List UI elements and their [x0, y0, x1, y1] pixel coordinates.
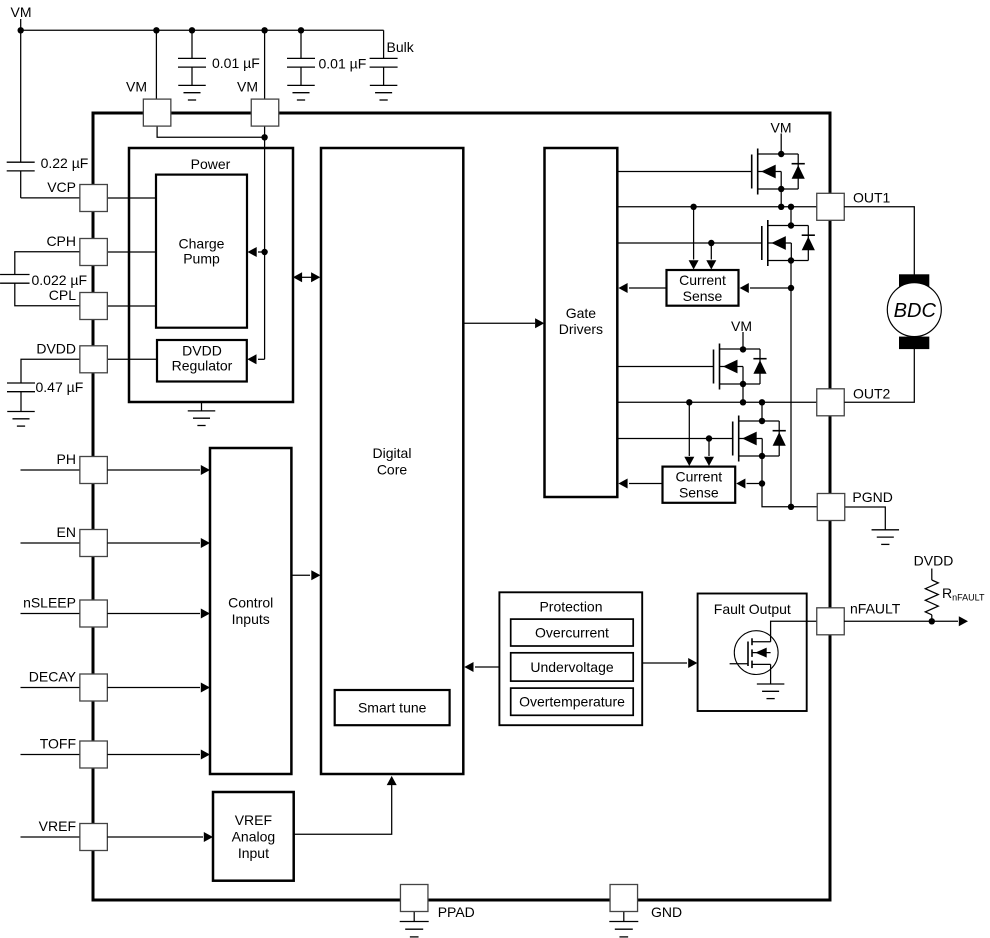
svg-text:Smart tune: Smart tune	[358, 700, 427, 716]
svg-text:BDC: BDC	[894, 300, 937, 322]
svg-text:Undervoltage: Undervoltage	[530, 659, 613, 675]
svg-text:VM: VM	[731, 318, 752, 334]
svg-text:VM: VM	[11, 4, 32, 20]
svg-text:Pump: Pump	[183, 250, 220, 266]
svg-text:Power: Power	[191, 156, 231, 172]
svg-text:DVDD: DVDD	[182, 343, 222, 359]
svg-text:0.01 µF: 0.01 µF	[212, 55, 260, 71]
svg-text:Inputs: Inputs	[232, 611, 270, 627]
svg-text:VM: VM	[237, 79, 258, 95]
svg-text:Protection: Protection	[539, 599, 602, 615]
svg-text:Current: Current	[675, 469, 722, 485]
svg-text:CPH: CPH	[46, 233, 76, 249]
svg-text:0.47 µF: 0.47 µF	[36, 379, 84, 395]
svg-text:0.22 µF: 0.22 µF	[41, 155, 89, 171]
svg-text:PH: PH	[57, 451, 76, 467]
svg-text:Analog: Analog	[232, 828, 276, 844]
svg-text:Core: Core	[377, 462, 408, 478]
svg-text:VREF: VREF	[235, 812, 272, 828]
svg-text:nSLEEP: nSLEEP	[23, 595, 76, 611]
svg-text:0.01 µF: 0.01 µF	[319, 56, 367, 72]
svg-text:Regulator: Regulator	[172, 358, 233, 374]
svg-text:Charge: Charge	[179, 235, 225, 251]
svg-text:Sense: Sense	[683, 288, 723, 304]
svg-text:Overtemperature: Overtemperature	[519, 694, 625, 710]
svg-text:OUT2: OUT2	[853, 386, 891, 402]
svg-text:DVDD: DVDD	[36, 340, 76, 356]
svg-text:Current: Current	[679, 272, 726, 288]
svg-text:Overcurrent: Overcurrent	[535, 625, 609, 641]
svg-text:PPAD: PPAD	[438, 904, 475, 920]
svg-text:GND: GND	[651, 904, 682, 920]
svg-text:CPL: CPL	[49, 287, 76, 303]
svg-text:nFAULT: nFAULT	[850, 601, 901, 617]
svg-text:Control: Control	[228, 595, 273, 611]
svg-text:TOFF: TOFF	[40, 736, 76, 752]
svg-text:Sense: Sense	[679, 485, 719, 501]
svg-text:VCP: VCP	[47, 179, 76, 195]
svg-text:PGND: PGND	[852, 489, 892, 505]
svg-text:DECAY: DECAY	[29, 669, 77, 685]
svg-text:VREF: VREF	[39, 818, 76, 834]
svg-text:Digital: Digital	[373, 445, 412, 461]
svg-text:Bulk: Bulk	[387, 39, 415, 55]
svg-text:0.022 µF: 0.022 µF	[32, 272, 88, 288]
svg-text:Drivers: Drivers	[559, 321, 603, 337]
svg-text:Input: Input	[238, 845, 269, 861]
svg-text:VM: VM	[126, 79, 147, 95]
svg-text:Fault Output: Fault Output	[714, 601, 791, 617]
svg-text:Gate: Gate	[566, 305, 597, 321]
svg-text:OUT1: OUT1	[853, 190, 891, 206]
svg-text:VM: VM	[771, 119, 792, 135]
svg-text:EN: EN	[57, 524, 76, 540]
svg-text:DVDD: DVDD	[914, 553, 954, 569]
